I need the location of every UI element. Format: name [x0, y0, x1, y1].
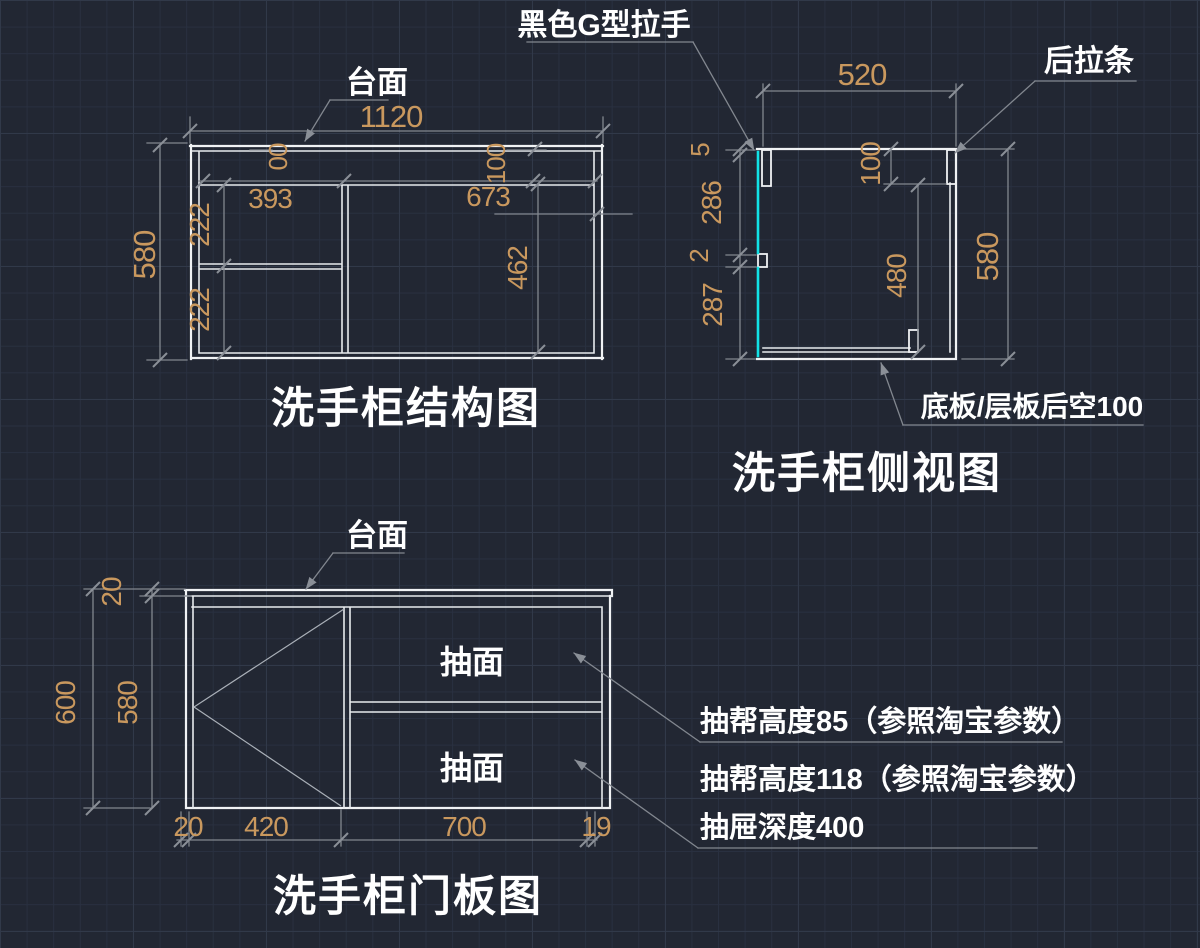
- door-view-title: 洗手柜门板图: [273, 873, 543, 921]
- cad-drawing-canvas: 台面 1120 580 393 673 00 100 222 222 462 洗…: [0, 0, 1200, 948]
- side-dim-upper-front: 286: [696, 181, 727, 225]
- side-rear-rail-label: 后拉条: [1044, 44, 1134, 78]
- structure-dimension-lines: [147, 100, 632, 367]
- structure-dim-left-rail: 00: [263, 143, 293, 170]
- structure-dim-right-section: 673: [466, 181, 510, 212]
- structure-view: 台面 1120 580 393 673 00 100 222 222 462 洗…: [127, 65, 632, 433]
- door-countertop-label: 台面: [346, 518, 408, 553]
- side-view: 黑色G型拉手 后拉条 520 5 286 2 287 100 480 580 底…: [517, 8, 1143, 498]
- door-note-drawer-side-118: 抽帮高度118（参照淘宝参数）: [700, 762, 1095, 796]
- structure-dim-total-width: 1120: [360, 99, 423, 134]
- door-dim-door-width: 420: [244, 811, 288, 842]
- structure-countertop-label: 台面: [346, 65, 408, 100]
- door-view: 台面 20 600 580 抽面 抽面 抽帮高度85（参照淘宝参数） 抽帮高度1…: [50, 518, 1095, 921]
- side-rear-rail: [947, 150, 956, 184]
- door-drawer-label-upper: 抽面: [440, 644, 504, 680]
- side-dim-inner-height: 480: [881, 254, 912, 298]
- door-dim-right-gap: 19: [581, 811, 611, 842]
- structure-dim-left-section: 393: [248, 183, 292, 214]
- door-cabinet-outline: [185, 590, 612, 808]
- structure-cabinet-outline: [190, 145, 603, 359]
- door-dim-left-gap: 20: [173, 811, 203, 842]
- side-bottom-note: 底板/层板后空100: [921, 390, 1144, 422]
- side-dim-top-gap: 5: [685, 143, 715, 157]
- door-dim-total-height: 600: [50, 681, 81, 725]
- side-dim-mid-gap: 2: [684, 249, 714, 263]
- side-handle-label: 黑色G型拉手: [517, 8, 690, 42]
- side-dim-lower-front: 287: [697, 283, 728, 327]
- side-dim-total-height: 580: [970, 232, 1005, 281]
- side-dim-rear-rail: 100: [855, 142, 886, 186]
- structure-dim-shelf-lower: 222: [184, 288, 215, 332]
- door-dim-drawer-width: 700: [442, 811, 486, 842]
- drawing-layer: 台面 1120 580 393 673 00 100 222 222 462 洗…: [0, 0, 1200, 948]
- door-note-drawer-depth: 抽屉深度400: [700, 811, 864, 844]
- door-drawer-label-lower: 抽面: [440, 750, 504, 786]
- structure-dim-shelf-upper: 222: [184, 203, 215, 247]
- side-view-title: 洗手柜侧视图: [732, 450, 1002, 498]
- side-dimension-lines: [527, 42, 1143, 425]
- door-dimension-lines: [84, 553, 1062, 848]
- door-dim-body-height: 580: [112, 681, 143, 725]
- door-dim-countertop: 20: [96, 577, 127, 607]
- structure-dim-right-inner: 462: [502, 246, 533, 290]
- door-note-drawer-side-85: 抽帮高度85（参照淘宝参数）: [700, 704, 1080, 738]
- door-swing-symbol: [194, 609, 344, 806]
- side-dim-depth: 520: [838, 57, 887, 92]
- side-front-rail: [762, 150, 771, 186]
- structure-dim-total-height: 580: [127, 230, 162, 279]
- structure-dim-right-rail: 100: [481, 143, 511, 184]
- structure-view-title: 洗手柜结构图: [271, 385, 541, 433]
- side-front-gap-notch: [758, 254, 767, 267]
